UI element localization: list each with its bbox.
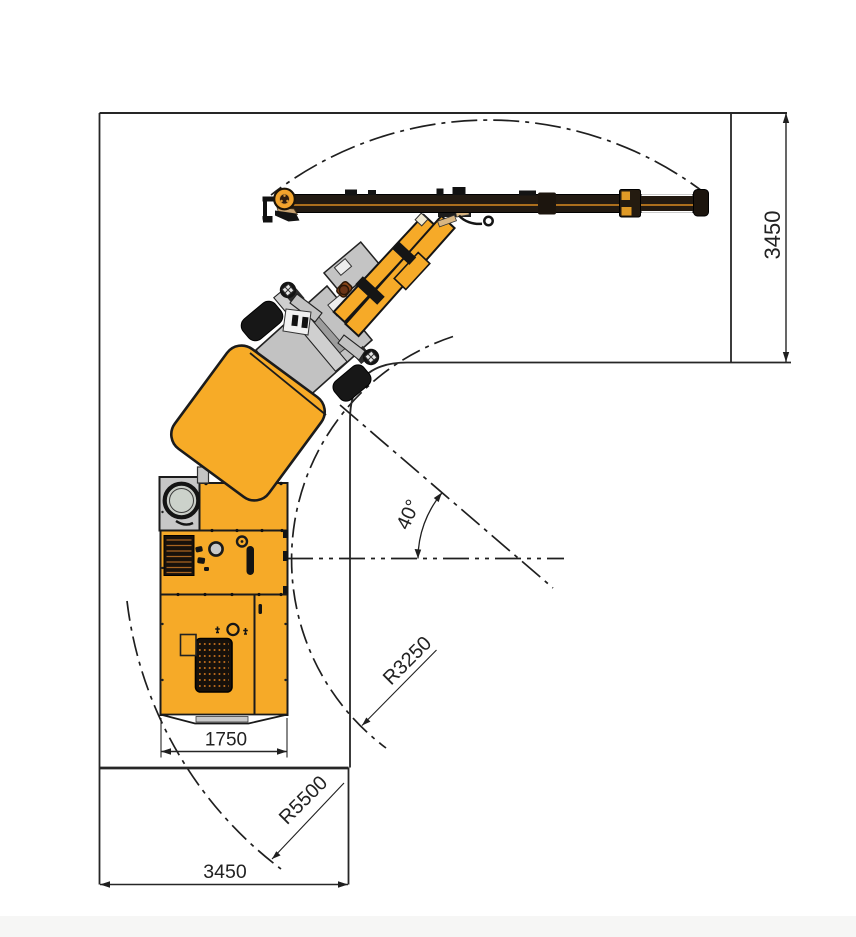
svg-text:3450: 3450 <box>203 861 247 883</box>
svg-text:3450: 3450 <box>760 211 785 260</box>
svg-text:1750: 1750 <box>205 730 247 751</box>
